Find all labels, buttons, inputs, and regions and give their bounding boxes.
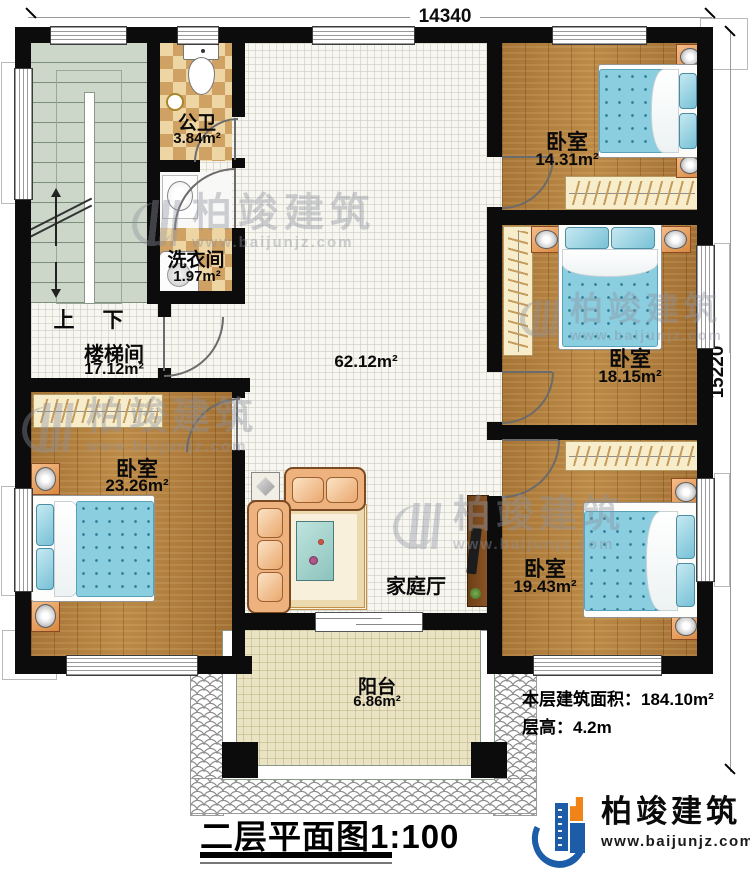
- lamp: [535, 230, 558, 249]
- wardrobe: [565, 176, 699, 210]
- lamp: [35, 604, 56, 628]
- sofa-cushion: [257, 508, 283, 538]
- door-leaf: [234, 168, 236, 228]
- corner-table: [251, 472, 280, 501]
- wall: [487, 207, 502, 372]
- logo-block-orange: [570, 797, 583, 821]
- stairs-up-label: 上: [54, 304, 75, 334]
- balcony-railing: [222, 765, 495, 780]
- coffee-table: [296, 521, 334, 581]
- mattress: [76, 501, 154, 597]
- hall-area-label: 62.12m²: [334, 352, 397, 372]
- room-area-stairwell: 17.12m²: [84, 361, 144, 379]
- dimension-line-top: [28, 17, 712, 18]
- dimension-line-right: [730, 32, 731, 772]
- lamp: [675, 616, 697, 636]
- sofa: [247, 500, 291, 614]
- wall: [147, 160, 200, 172]
- bed: [598, 64, 702, 158]
- window: [533, 655, 662, 676]
- lamp: [35, 467, 56, 491]
- wall: [487, 425, 713, 440]
- balcony-column: [471, 742, 507, 778]
- logo-block-blue: [570, 823, 585, 853]
- sofa-cushion: [326, 477, 358, 503]
- door-leaf: [502, 439, 558, 441]
- wardrobe: [503, 226, 533, 356]
- floor-height-note: 层高：4.2m: [522, 713, 612, 738]
- wall: [15, 378, 250, 392]
- room-area-balcony: 6.86m²: [353, 693, 401, 710]
- stairs-down-label: 下: [103, 304, 124, 334]
- stair-direction-arrow: [51, 289, 61, 298]
- title-underline: [200, 852, 392, 858]
- door-leaf: [502, 371, 552, 373]
- brand-logo-icon: [535, 795, 591, 859]
- sofa-cushion: [257, 540, 283, 570]
- pillow: [565, 227, 609, 249]
- wall: [158, 303, 171, 317]
- pillow: [36, 548, 54, 590]
- page-title: 二层平面图1:100: [200, 810, 459, 858]
- pillow: [676, 563, 695, 607]
- brand-name: 柏竣建筑: [601, 795, 750, 829]
- window: [14, 488, 33, 592]
- brand-website: www.baijunjz.com: [601, 833, 750, 850]
- door-leaf: [236, 398, 238, 450]
- wall: [487, 496, 502, 656]
- pillow: [679, 113, 697, 149]
- window: [312, 26, 415, 45]
- room-area-bedroom-mid-right: 18.15m²: [598, 367, 661, 387]
- roof-tiles: [190, 778, 537, 814]
- wardrobe: [565, 441, 699, 471]
- floor-plan: 14340 15220: [0, 0, 750, 871]
- bed: [583, 502, 702, 618]
- bed: [558, 222, 662, 350]
- lamp: [664, 230, 687, 249]
- nightstand: [31, 600, 60, 632]
- window: [696, 478, 715, 582]
- bed-sheet: [651, 69, 679, 153]
- window: [552, 26, 647, 45]
- window: [50, 26, 127, 45]
- bed-sheet: [646, 511, 678, 611]
- plant: [470, 588, 481, 599]
- title-underline-thin: [200, 862, 392, 864]
- floor-area-note: 本层建筑面积：184.10m²: [522, 685, 714, 710]
- wall: [232, 40, 245, 117]
- window: [14, 68, 33, 200]
- wall: [232, 228, 245, 292]
- lamp: [675, 482, 697, 502]
- balcony-column: [222, 742, 258, 778]
- room-area-bedroom-bottom-right: 19.43m²: [513, 577, 576, 597]
- room-area-bathroom: 3.84m²: [173, 130, 221, 147]
- wall: [487, 210, 713, 225]
- door-leaf: [234, 118, 236, 160]
- wall: [487, 40, 502, 157]
- window: [177, 26, 219, 45]
- balcony-sliding-door: [315, 612, 423, 632]
- exterior-sill: [714, 473, 730, 587]
- pillow: [676, 515, 695, 559]
- stair-direction-arrow: [55, 262, 57, 290]
- dimension-width: 14340: [410, 6, 480, 28]
- sofa-cushion: [257, 572, 283, 602]
- stair-direction-arrow: [55, 196, 57, 246]
- nightstand: [31, 463, 60, 495]
- pillow: [36, 504, 54, 546]
- sofa-cushion: [292, 477, 324, 503]
- nightstand: [660, 226, 691, 253]
- door-leaf: [163, 317, 165, 371]
- pillow: [679, 73, 697, 109]
- window: [66, 655, 198, 676]
- window: [696, 245, 715, 349]
- wall: [232, 450, 245, 656]
- brand-logo: 柏竣建筑 www.baijunjz.com: [535, 795, 750, 859]
- family-hall-label: 家庭厅: [386, 570, 446, 599]
- logo-tower: [555, 803, 568, 851]
- loveseat: [284, 467, 366, 511]
- bed: [31, 495, 155, 602]
- wardrobe: [33, 394, 163, 428]
- room-area-bedroom-top-right: 14.31m²: [535, 150, 598, 170]
- pillow: [611, 227, 655, 249]
- bed-sheet: [562, 249, 658, 277]
- room-area-laundry: 1.97m²: [173, 268, 221, 285]
- wall: [232, 378, 245, 398]
- room-area-bedroom-left: 23.26m²: [105, 476, 168, 496]
